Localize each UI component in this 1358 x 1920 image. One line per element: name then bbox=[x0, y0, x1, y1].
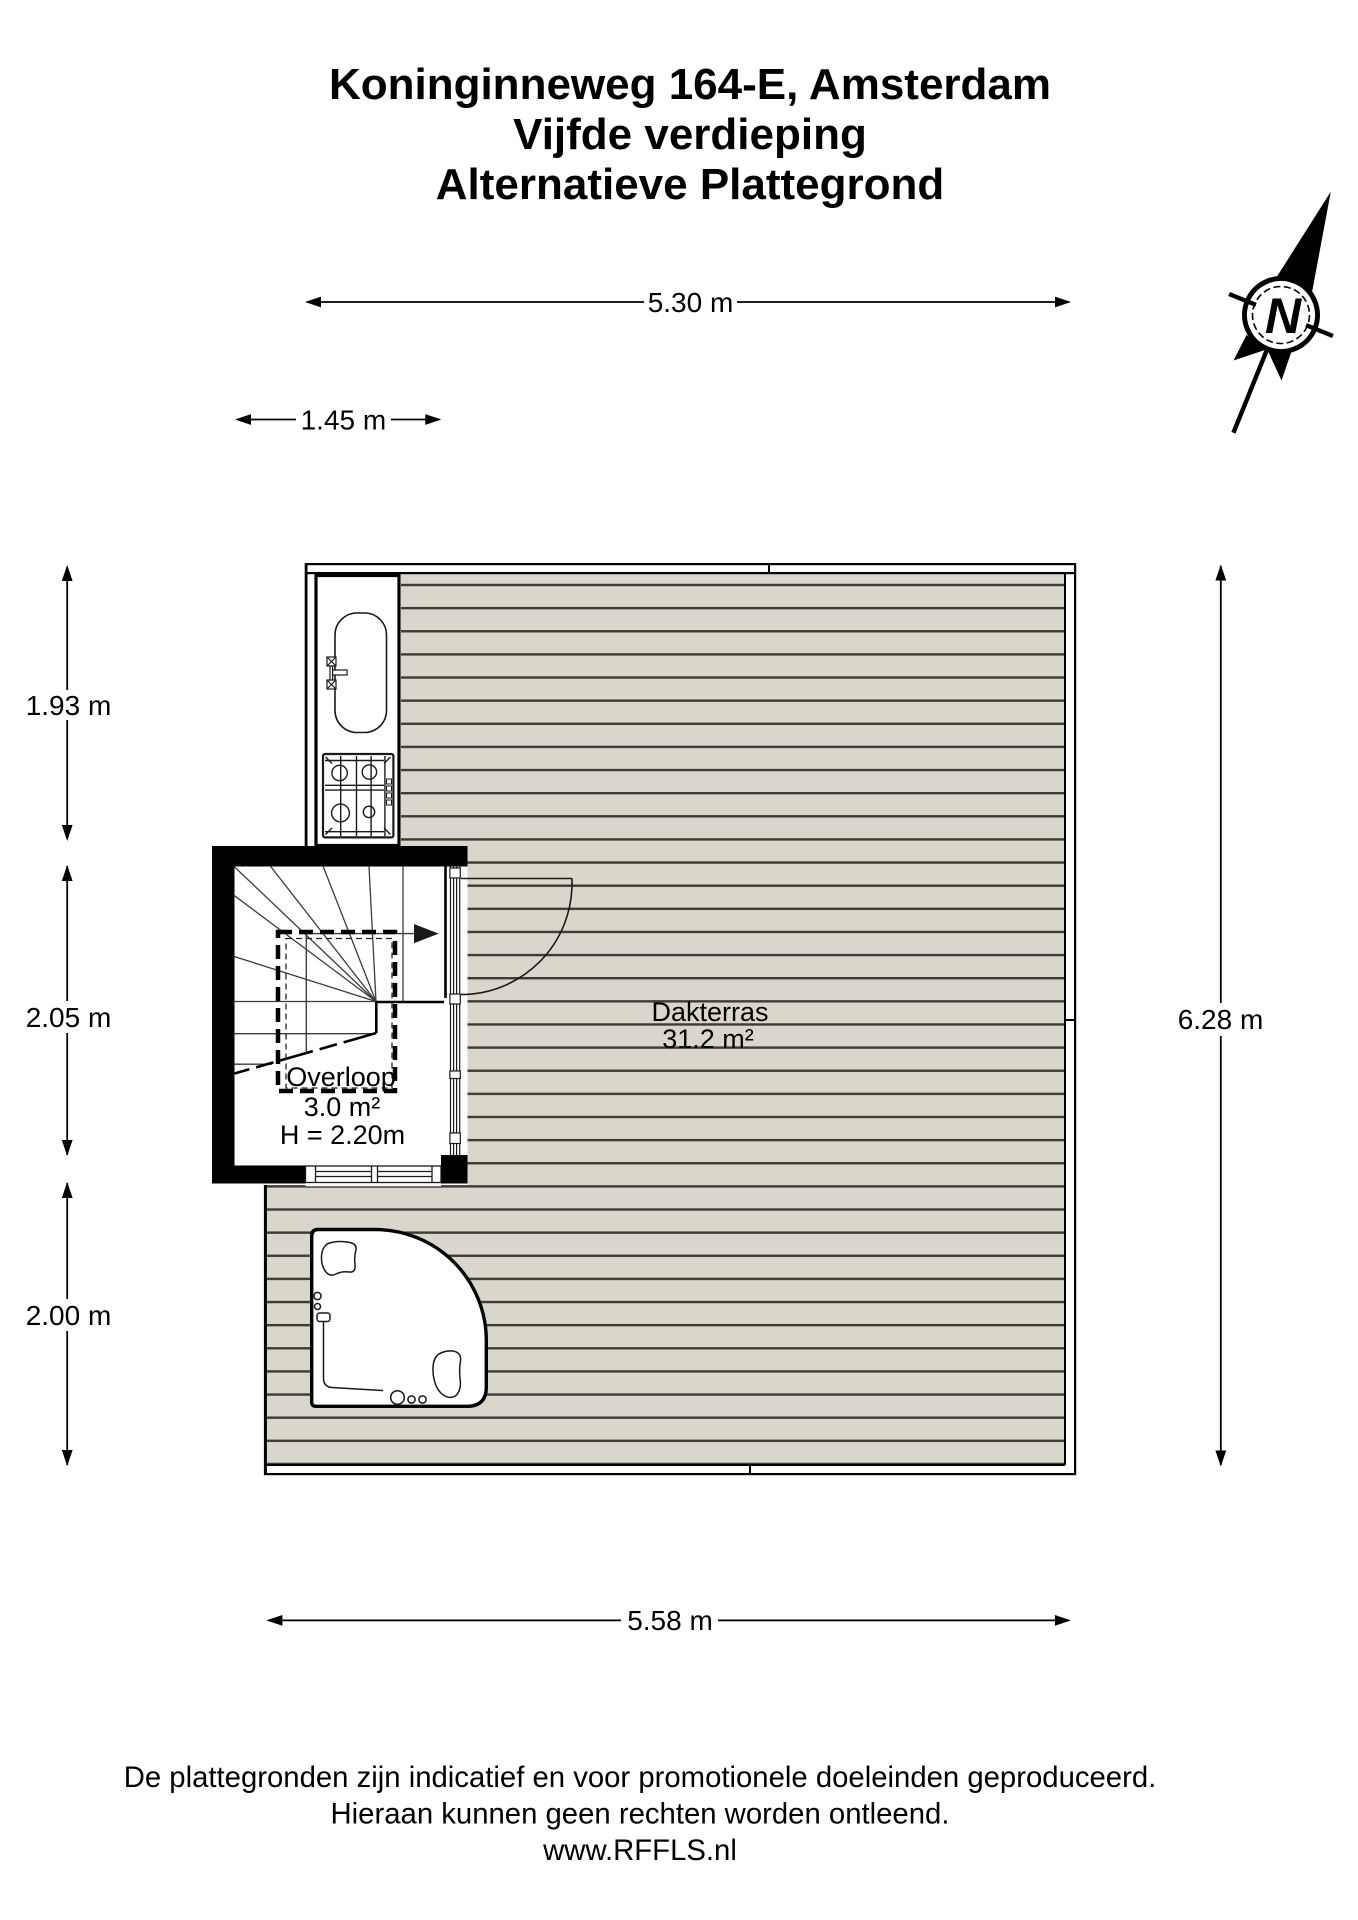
svg-text:2.05 m: 2.05 m bbox=[26, 1002, 112, 1033]
svg-text:De plattegronden zijn indicati: De plattegronden zijn indicatief en voor… bbox=[124, 1761, 1157, 1794]
svg-text:6.28 m: 6.28 m bbox=[1178, 1004, 1264, 1035]
svg-text:1.93 m: 1.93 m bbox=[26, 690, 112, 721]
svg-text:31.2 m²: 31.2 m² bbox=[662, 1024, 754, 1054]
svg-text:Vijfde verdieping: Vijfde verdieping bbox=[513, 110, 867, 159]
svg-text:www.RFFLS.nl: www.RFFLS.nl bbox=[542, 1834, 737, 1867]
svg-text:Hieraan kunnen geen rechten wo: Hieraan kunnen geen rechten worden ontle… bbox=[331, 1798, 950, 1831]
svg-text:5.30 m: 5.30 m bbox=[648, 287, 734, 318]
svg-text:Koninginneweg 164-E, Amsterdam: Koninginneweg 164-E, Amsterdam bbox=[329, 60, 1051, 109]
svg-text:Dakterras: Dakterras bbox=[651, 997, 768, 1027]
svg-text:Alternatieve Plattegrond: Alternatieve Plattegrond bbox=[436, 160, 945, 209]
svg-text:H = 2.20m: H = 2.20m bbox=[280, 1120, 405, 1150]
svg-text:1.45 m: 1.45 m bbox=[301, 405, 387, 436]
svg-text:3.0 m²: 3.0 m² bbox=[304, 1092, 381, 1122]
svg-text:Overloop: Overloop bbox=[286, 1062, 396, 1092]
svg-text:N: N bbox=[1265, 288, 1302, 344]
svg-text:2.00 m: 2.00 m bbox=[26, 1300, 112, 1331]
svg-text:5.58 m: 5.58 m bbox=[627, 1605, 713, 1636]
